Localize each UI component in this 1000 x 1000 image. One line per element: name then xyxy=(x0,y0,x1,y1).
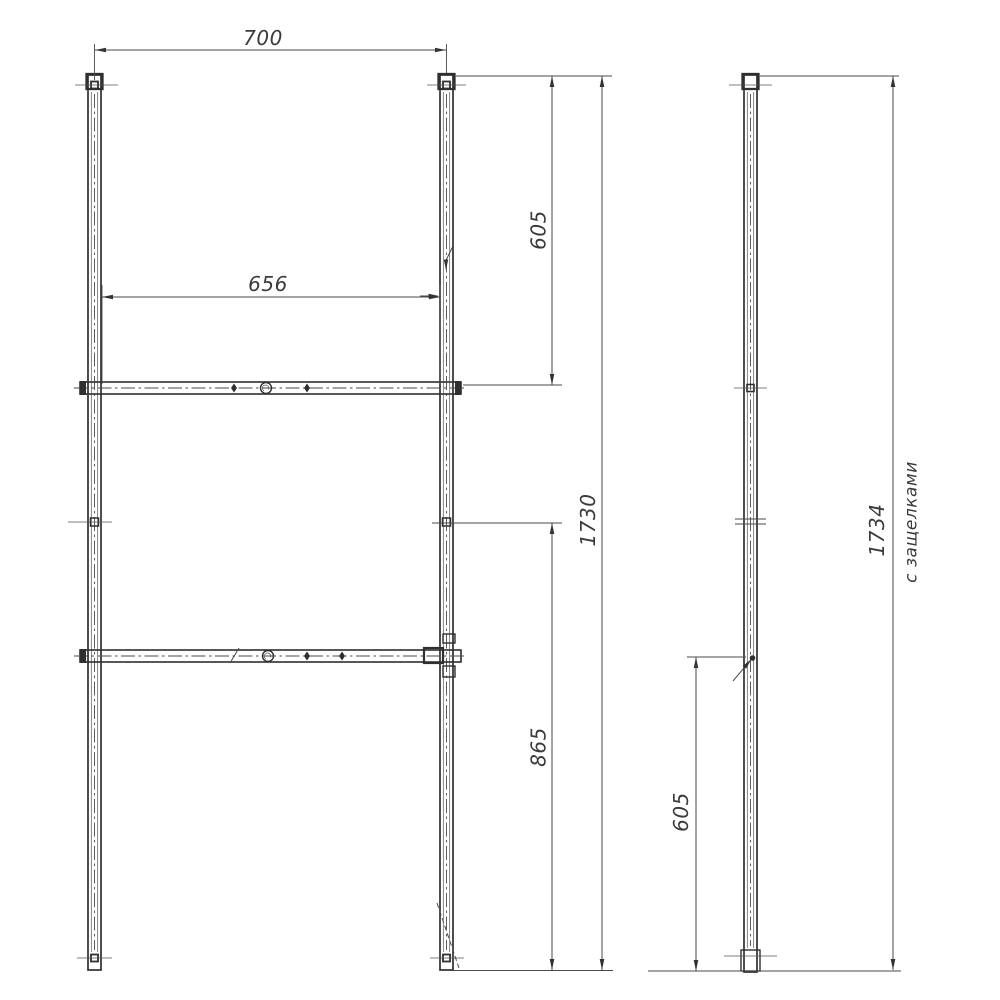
dim-label-865: 865 xyxy=(527,727,551,767)
technical-drawing: 700 656 605 xyxy=(0,0,1000,1000)
side-post xyxy=(724,74,777,972)
dim-label-700: 700 xyxy=(243,26,283,50)
dim-label-1734: 1734 xyxy=(865,504,889,557)
side-leader xyxy=(733,659,752,681)
dim-width-top: 700 xyxy=(95,26,447,80)
front-right-post xyxy=(427,74,466,970)
dim-lower-height: 865 xyxy=(527,523,555,970)
weld-mark xyxy=(231,384,237,393)
side-view: 605 1734 с защелками xyxy=(648,74,922,972)
side-post-cap xyxy=(743,74,759,89)
dim-label-656: 656 xyxy=(248,272,288,296)
dim-side-lower: 605 xyxy=(669,657,698,971)
drawing-sheet: 700 656 605 xyxy=(0,0,1000,1000)
dim-label-605-side: 605 xyxy=(669,792,693,832)
leader-arrowhead xyxy=(444,260,448,271)
front-view: 700 656 605 xyxy=(68,26,613,971)
side-dimensions: 605 1734 с защелками xyxy=(648,76,922,971)
front-left-post xyxy=(68,74,118,970)
dim-label-605-front: 605 xyxy=(527,210,551,250)
front-leaders xyxy=(420,247,453,298)
front-dimensions: 700 656 605 xyxy=(95,26,614,971)
weld-mark xyxy=(339,652,345,661)
dim-rail-span: 656 xyxy=(102,272,440,384)
dim-label-1730: 1730 xyxy=(576,494,600,547)
dim-upper-height: 605 xyxy=(527,76,555,385)
dim-total-height: 1730 xyxy=(576,76,604,970)
latch-note-label: с защелками xyxy=(902,461,922,583)
upper-crossbar xyxy=(74,381,467,395)
weld-mark xyxy=(304,384,310,393)
weld-mark xyxy=(304,652,310,661)
lower-crossbar xyxy=(74,634,467,677)
dim-side-total: 1734 с защелками xyxy=(865,76,922,970)
